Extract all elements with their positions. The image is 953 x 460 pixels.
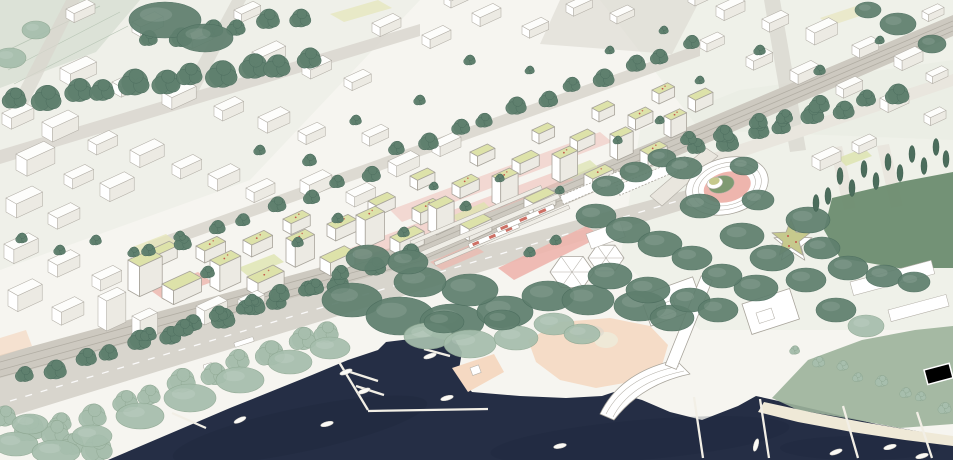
tree-canopy [750,245,794,271]
cypress-tree [933,139,939,156]
cypress-tree [825,188,831,205]
tree-canopy [424,311,464,333]
tree-canopy [855,2,881,18]
cypress-tree [897,165,903,182]
tree-canopy [666,157,702,179]
tree-canopy [804,237,840,259]
tree-canopy [484,310,520,330]
roof-detail [212,240,214,242]
roof-detail [597,171,599,173]
cypress-tree [873,173,879,190]
roof-detail [566,149,568,151]
tree-canopy [742,190,774,210]
roof-detail [674,114,676,116]
tree-canopy [698,298,738,322]
cypress-tree [849,180,855,197]
tree-canopy [816,298,856,322]
roof-detail [209,243,211,245]
tree-canopy [626,277,670,303]
tree-canopy [164,384,216,412]
tree-canopy [918,35,946,53]
roof-detail [639,113,641,115]
roof-detail [506,171,508,173]
roof-detail [301,233,303,235]
cypress-tree [813,195,819,212]
masterplan-canvas: Aerial masterplan illustration - lakesid… [0,0,953,460]
tree-canopy [22,21,50,39]
tree-canopy [720,223,764,249]
cypress-tree [909,146,915,163]
roof-detail [788,245,790,247]
roof-detail [655,144,657,146]
roof-detail [787,235,789,237]
tree-canopy [388,250,428,274]
tree-canopy [216,367,264,393]
tree-canopy [848,315,884,337]
roof-detail [676,111,678,113]
roof-detail [295,216,297,218]
roof-detail [795,241,797,243]
roof-detail [371,210,373,212]
tree-canopy [828,256,868,280]
tree-canopy [12,414,48,434]
tree-canopy [177,24,233,52]
tree-canopy [592,176,624,196]
cypress-tree [921,158,927,175]
tree-canopy [564,324,600,344]
tree-canopy [268,350,312,374]
roof-detail [652,147,654,149]
tree-canopy [588,263,632,289]
tree-canopy [866,265,902,287]
tree-canopy [346,245,390,271]
tree-canopy [730,157,758,175]
tree-canopy [620,162,652,182]
tree-canopy [116,403,164,429]
tree-canopy [442,274,498,306]
roof-detail [467,177,469,179]
roof-detail [268,270,270,272]
tree-canopy [898,272,930,292]
roof-detail [664,85,666,87]
tree-canopy [786,268,826,292]
roof-detail [464,180,466,182]
cypress-tree [885,154,891,171]
roof-detail [600,168,602,170]
roof-detail [256,237,258,239]
tree-canopy [562,285,614,315]
roof-detail [662,88,664,90]
tree-canopy [310,337,350,359]
cypress-tree [943,151,949,168]
roof-detail [223,258,225,260]
masterplan-illustration: Aerial masterplan illustration - lakesid… [0,0,953,460]
roof-detail [563,152,565,154]
roof-detail [227,254,229,256]
roof-detail [259,234,261,236]
cypress-tree [861,161,867,178]
tree-canopy [72,425,112,447]
roof-detail [642,110,644,112]
roof-detail [503,174,505,176]
tree-canopy [880,13,916,35]
cypress-tree [837,168,843,185]
roof-detail [425,205,427,207]
roof-detail [368,213,370,215]
tree-canopy [444,330,496,358]
tree-canopy [702,264,742,288]
roof-detail [298,213,300,215]
tree-canopy [786,207,830,233]
tree-canopy [672,246,712,270]
tree-canopy [680,194,720,218]
roof-detail [263,274,265,276]
